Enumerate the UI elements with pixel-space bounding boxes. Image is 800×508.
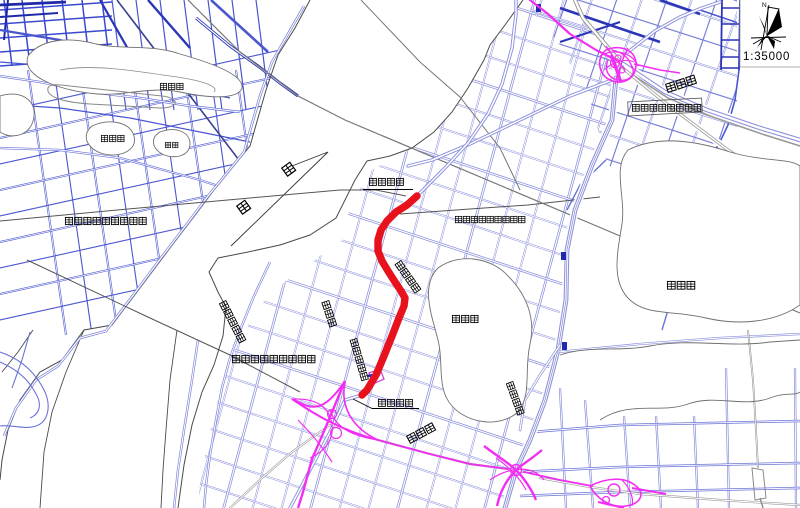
svg-text:N: N	[762, 2, 767, 9]
svg-text:1:35000: 1:35000	[743, 51, 790, 63]
